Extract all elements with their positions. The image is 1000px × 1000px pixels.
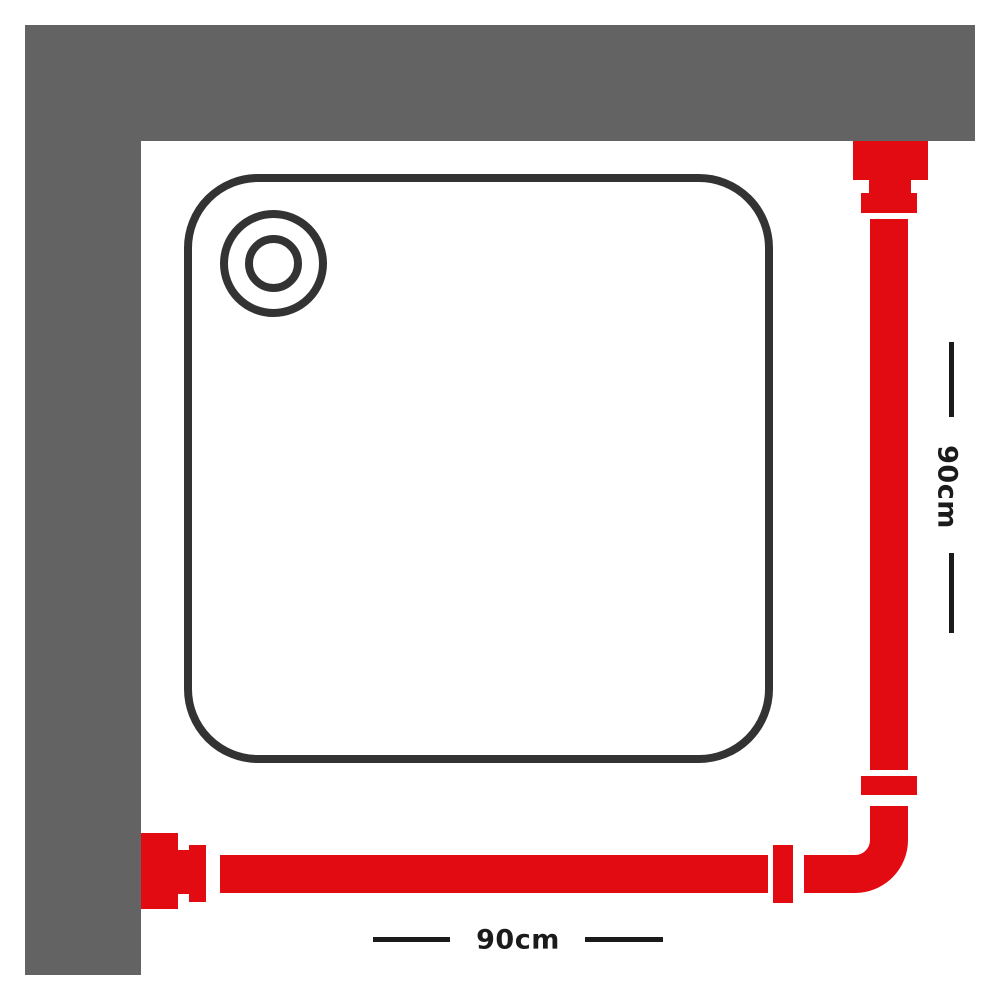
- top-bracket-plate: [853, 141, 928, 180]
- top-bracket-neck: [869, 180, 911, 194]
- dimension-tick: [949, 342, 954, 417]
- left-bracket-plate: [141, 833, 178, 909]
- dimension-label-bottom: 90cm: [476, 925, 560, 956]
- curtain-rail: [0, 0, 1000, 1000]
- dimension-tick: [949, 553, 954, 633]
- vertical-coupling-collar: [861, 776, 917, 795]
- horizontal-coupling-collar: [773, 845, 793, 903]
- dimension-tick: [585, 937, 663, 942]
- dimension-label-right: 90cm: [932, 445, 963, 529]
- rail-pipe: [220, 219, 889, 874]
- dimension-tick: [373, 937, 450, 942]
- shower-rail-diagram: 90cm 90cm: [0, 0, 1000, 1000]
- left-bracket-flange: [189, 845, 206, 902]
- top-bracket-flange: [861, 193, 917, 213]
